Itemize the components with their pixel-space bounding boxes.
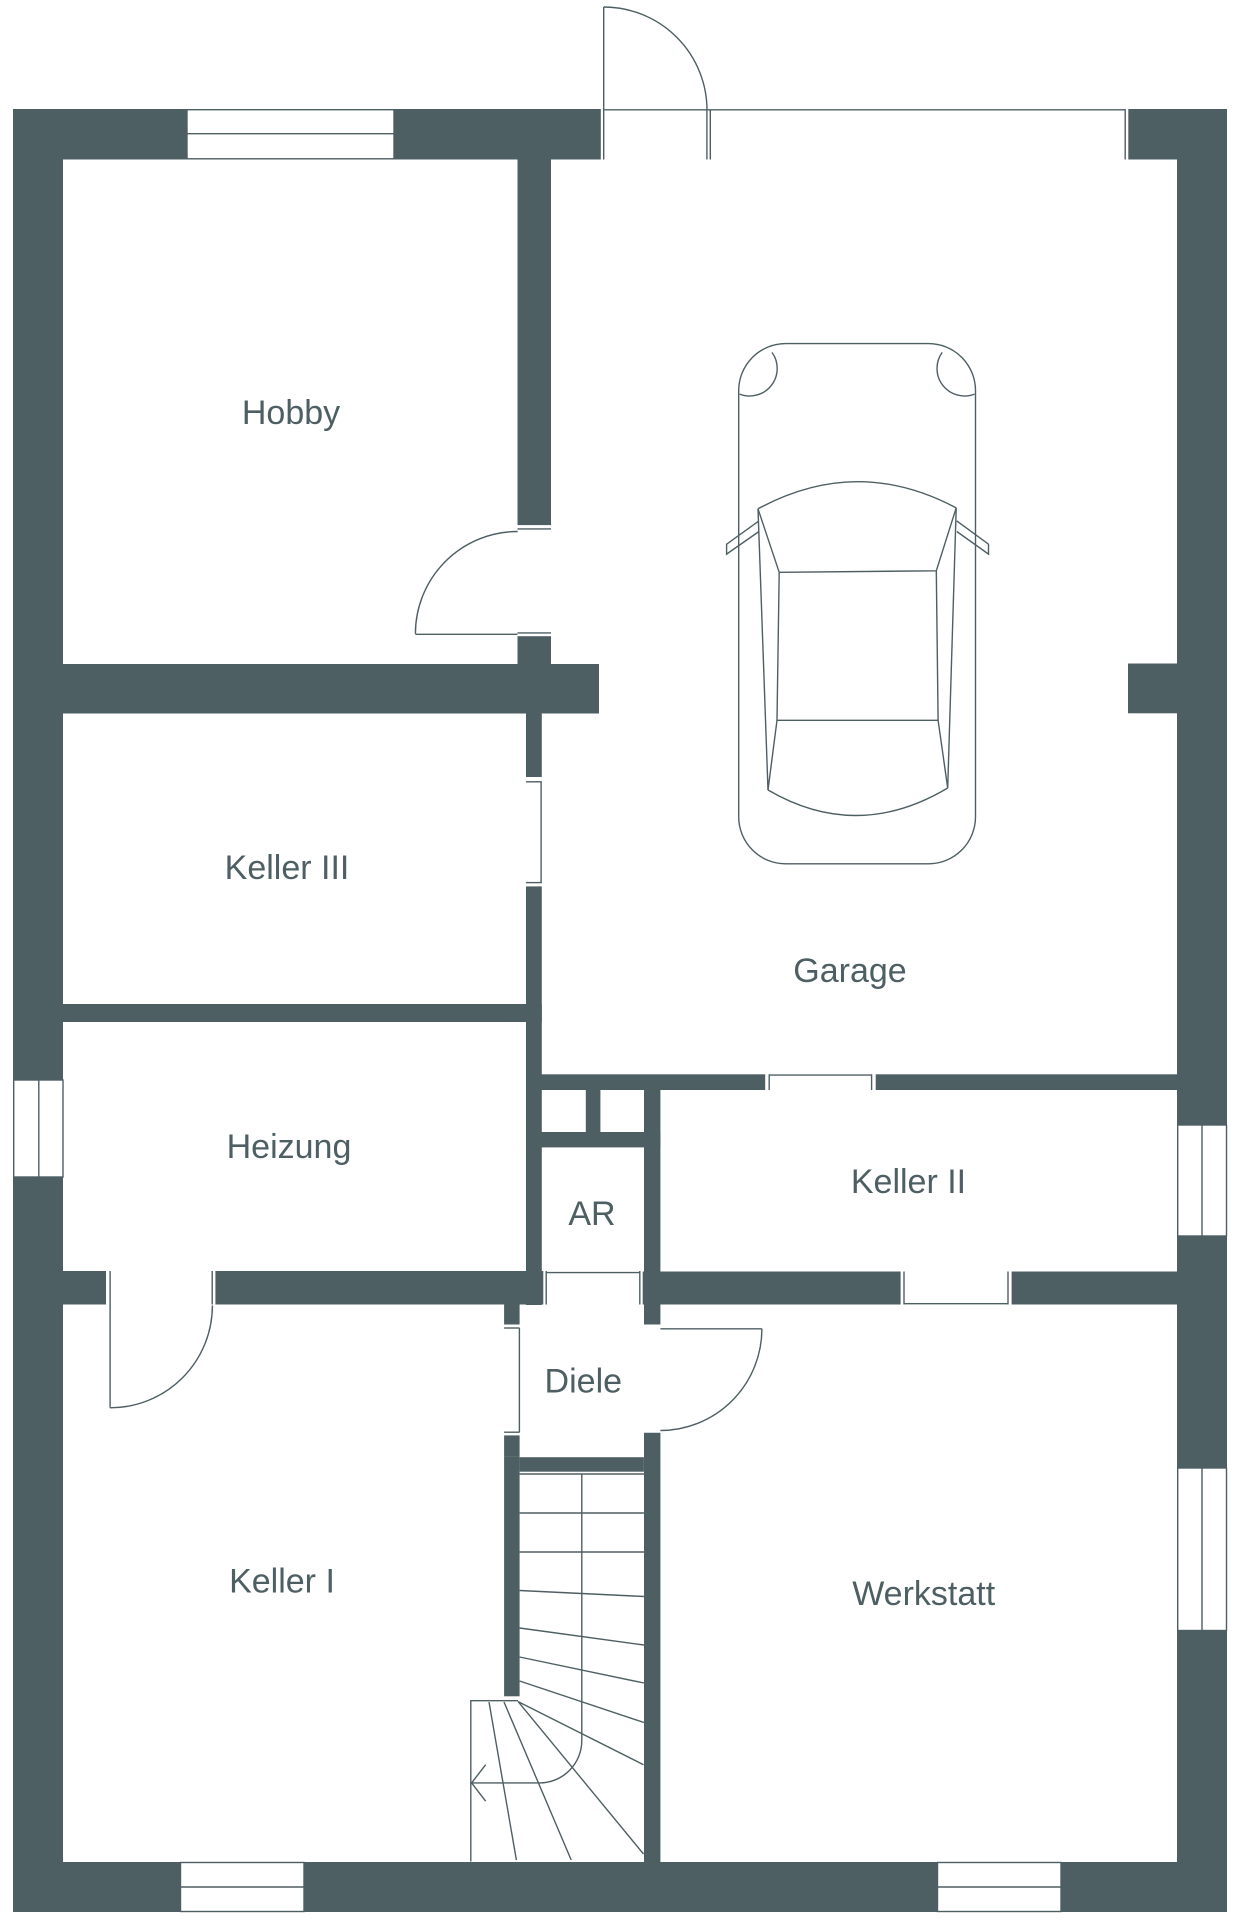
- svg-text:Garage: Garage: [793, 952, 906, 990]
- svg-text:Hobby: Hobby: [242, 394, 340, 432]
- svg-text:Diele: Diele: [545, 1362, 622, 1400]
- svg-text:AR: AR: [568, 1195, 615, 1233]
- svg-text:Werkstatt: Werkstatt: [852, 1575, 996, 1613]
- svg-text:Keller II: Keller II: [851, 1163, 966, 1201]
- svg-text:Keller III: Keller III: [225, 849, 350, 887]
- svg-text:Heizung: Heizung: [227, 1128, 352, 1166]
- svg-text:Keller I: Keller I: [229, 1562, 335, 1600]
